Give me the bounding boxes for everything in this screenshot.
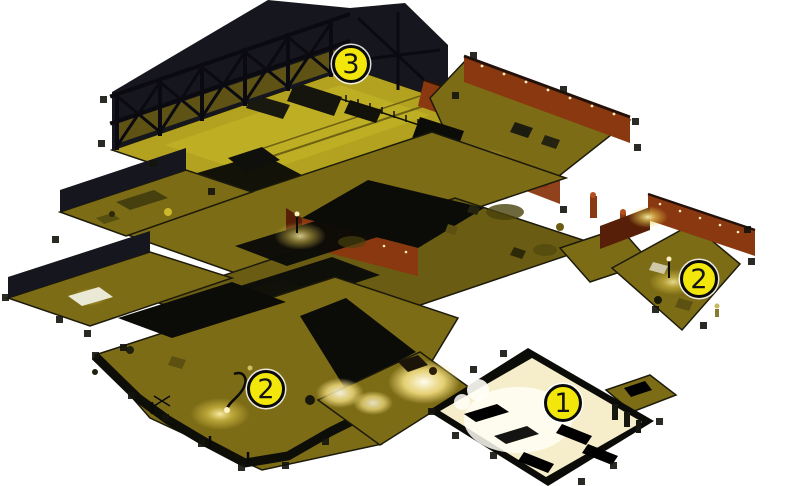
map-marker-3[interactable]: 3 <box>332 45 370 83</box>
game-map-screenshot: 3221 <box>0 0 786 486</box>
bright-flare <box>388 360 460 404</box>
map-marker-label: 1 <box>554 390 571 417</box>
light-pool <box>274 222 326 250</box>
map-marker-label: 3 <box>342 51 359 78</box>
map-marker-label: 2 <box>257 376 274 403</box>
barrel <box>556 223 564 231</box>
light-pool <box>628 206 668 228</box>
map-marker-label: 2 <box>690 266 707 293</box>
map-marker-1[interactable]: 1 <box>544 384 582 422</box>
map-marker-2[interactable]: 2 <box>247 370 285 408</box>
rust-totem <box>590 196 597 218</box>
light-pool <box>190 398 250 430</box>
map-marker-2[interactable]: 2 <box>680 260 718 298</box>
map-canvas <box>0 0 786 486</box>
